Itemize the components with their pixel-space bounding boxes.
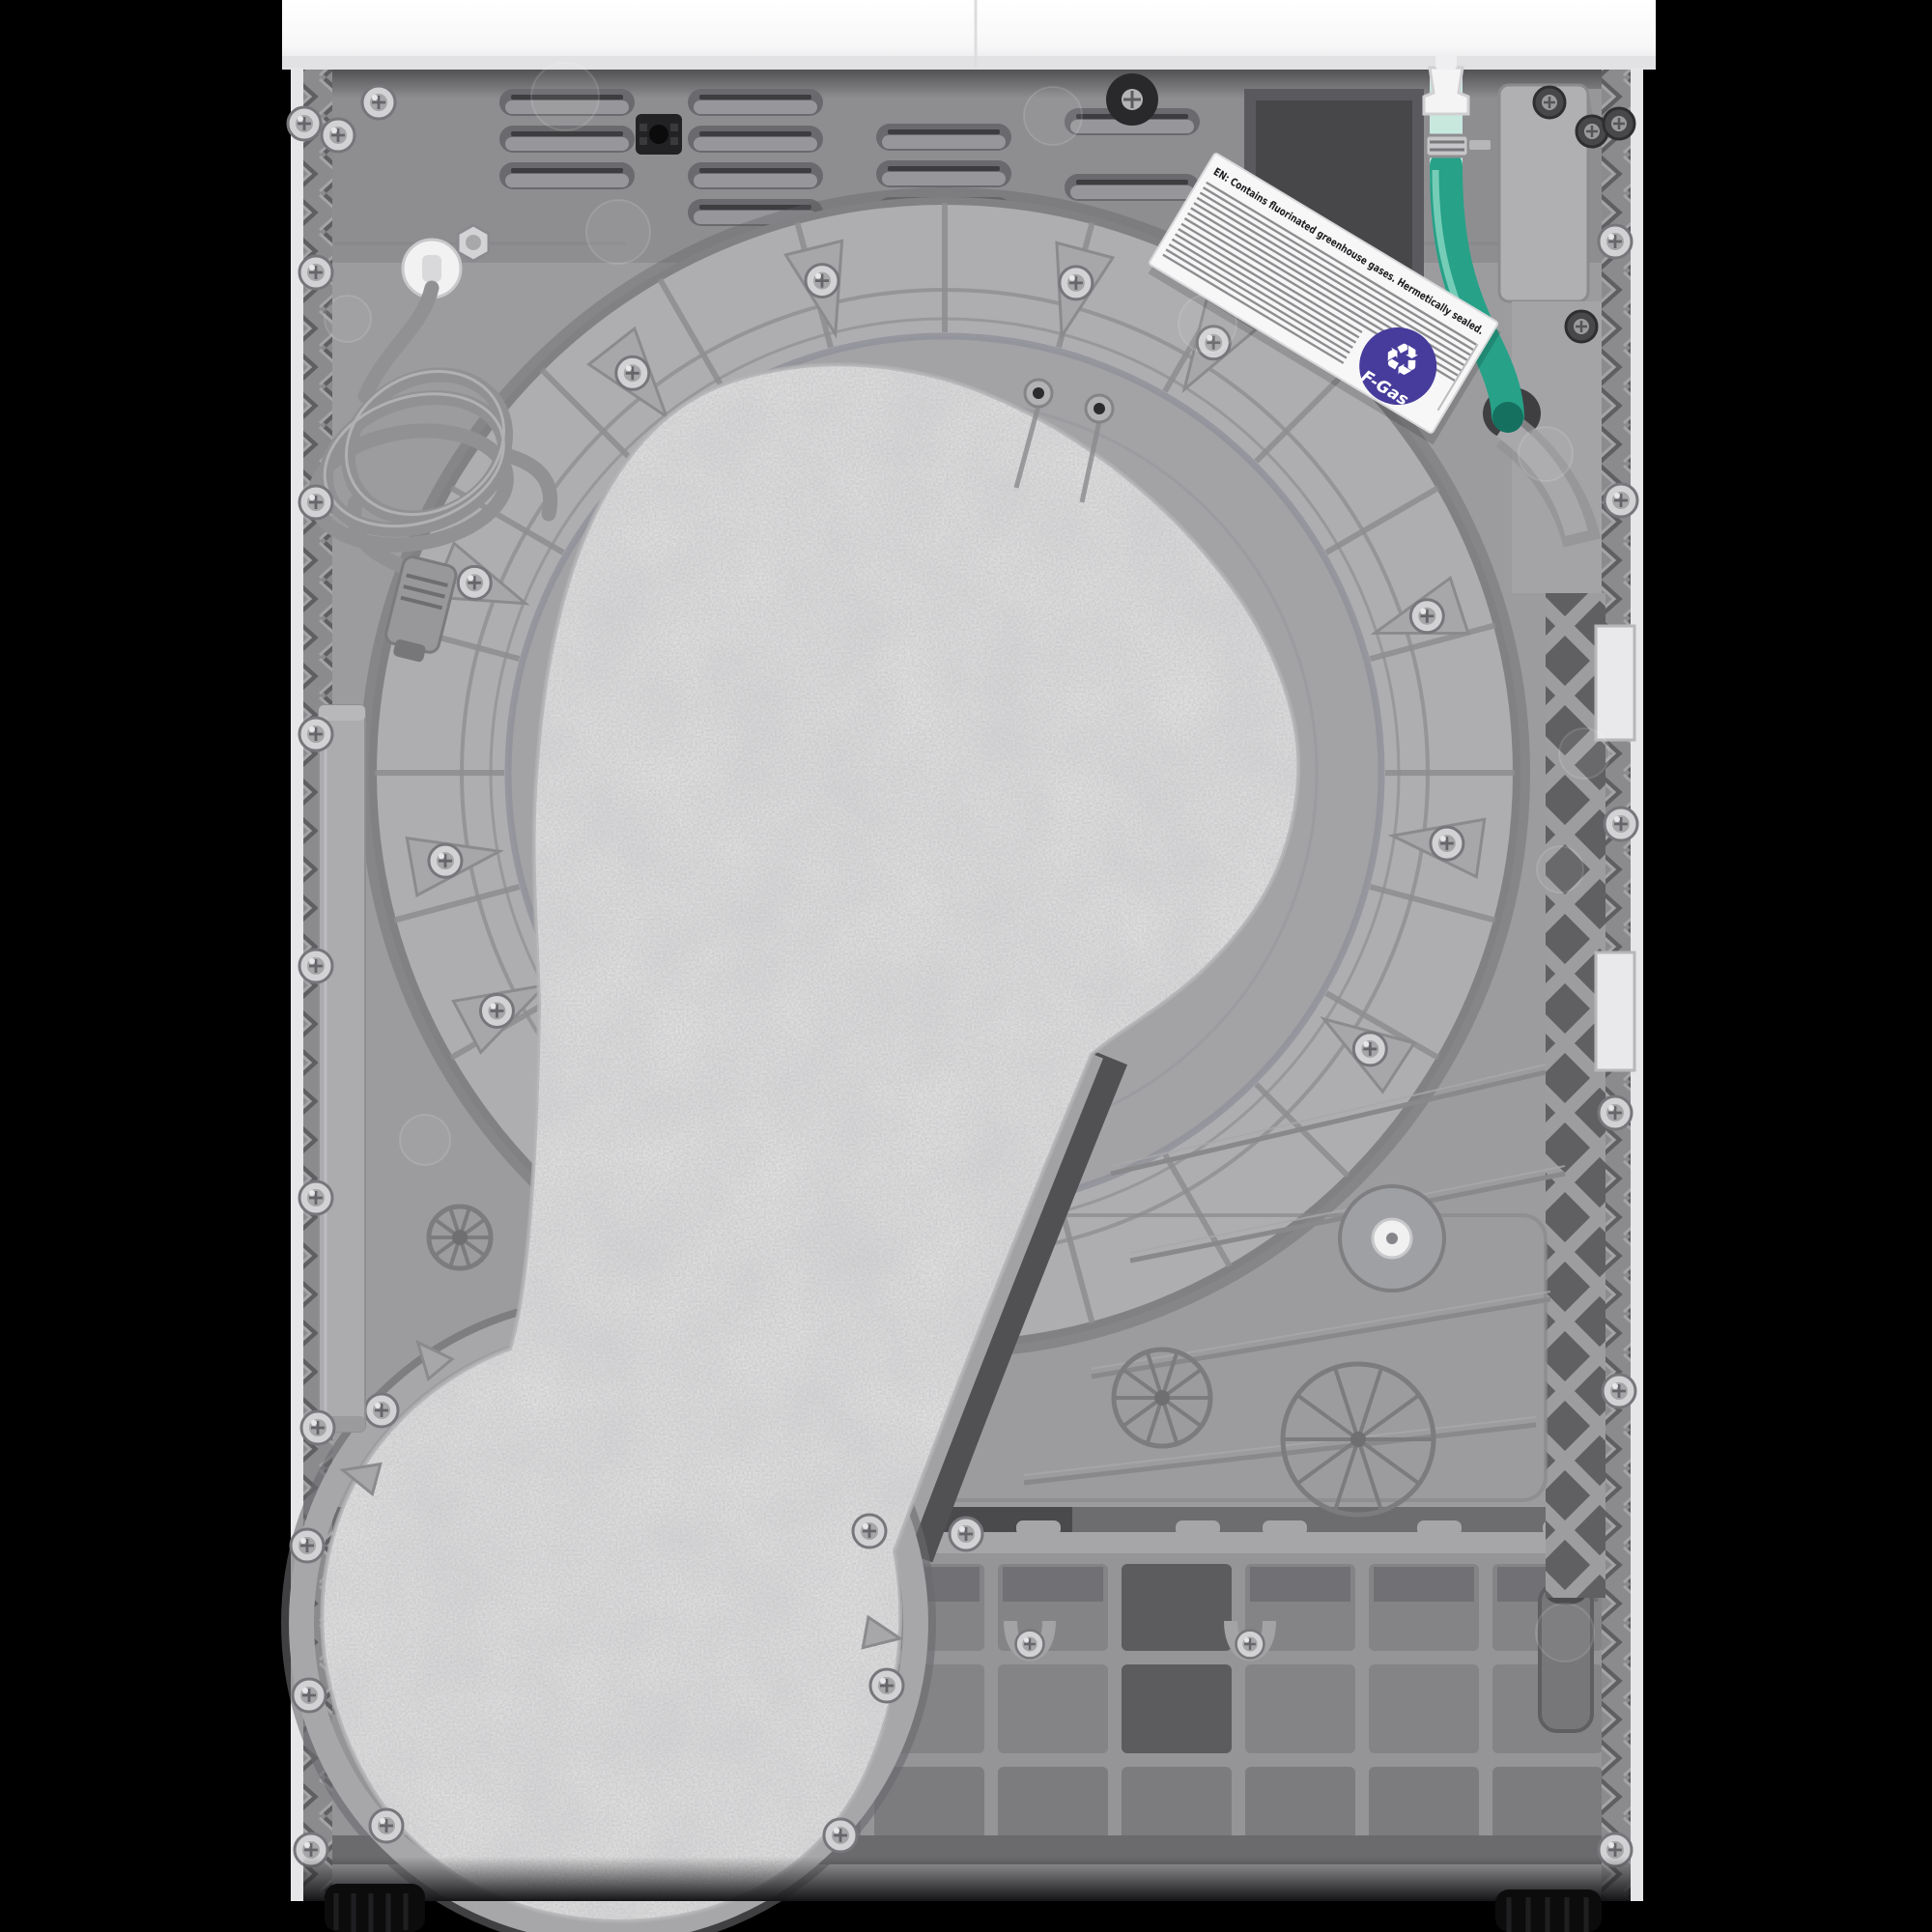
screw-icon xyxy=(1410,600,1443,633)
adjustable-foot-right xyxy=(1495,1889,1602,1932)
screw-icon xyxy=(1016,1631,1044,1659)
vent-slot-slit xyxy=(699,131,811,136)
dark-screw-icon xyxy=(1566,311,1597,342)
screw-icon xyxy=(616,356,649,389)
screw-icon xyxy=(806,265,838,298)
base-rim-tab xyxy=(1417,1520,1462,1536)
screw-icon xyxy=(322,119,355,152)
spoke-hub xyxy=(1350,1432,1366,1447)
spoke-hub xyxy=(452,1230,468,1245)
vent-slot-inner xyxy=(505,174,629,187)
screw-icon xyxy=(299,256,332,289)
screw-icon xyxy=(299,950,332,982)
base-rim-tab xyxy=(1263,1520,1307,1536)
dark-screw-icon xyxy=(1604,108,1634,139)
drain-hose-tip xyxy=(1492,402,1523,433)
dark-screw-icon xyxy=(1534,87,1565,118)
base-rim-tab xyxy=(1016,1520,1061,1536)
left-trim-bar xyxy=(319,705,365,1432)
shaft-clip xyxy=(636,114,682,155)
screw-icon xyxy=(301,1411,334,1444)
screw-icon xyxy=(1236,1631,1264,1659)
screw-icon xyxy=(293,1679,326,1712)
base-cell-shadow xyxy=(1003,1567,1103,1602)
edge-notch-lower xyxy=(1596,952,1634,1070)
base-cell xyxy=(1122,1564,1232,1651)
screw-icon xyxy=(291,1529,324,1562)
base-cell xyxy=(1245,1664,1355,1753)
vent-slot-slit xyxy=(699,95,811,99)
base-cell xyxy=(998,1664,1108,1753)
idler-pulley xyxy=(1340,1186,1444,1291)
screw-icon xyxy=(299,718,332,751)
adjustable-foot-left xyxy=(325,1884,425,1932)
vent-slot-slit xyxy=(511,168,623,173)
spoke-hub xyxy=(1154,1390,1170,1406)
screw-icon xyxy=(429,844,462,877)
vent-slot-inner xyxy=(882,135,1006,149)
screw-icon xyxy=(1431,827,1463,860)
photo-stage: EN: Contains fluorinated greenhouse gase… xyxy=(0,0,1932,1932)
cord-grommet-slot xyxy=(422,255,441,282)
screw-icon xyxy=(1599,225,1632,258)
screw-icon xyxy=(299,1181,332,1214)
screw-icon xyxy=(480,994,513,1027)
screw-icon xyxy=(1605,808,1637,840)
vent-slot-inner xyxy=(505,137,629,151)
vent-slot-slit xyxy=(699,168,811,173)
screw-icon xyxy=(362,86,395,119)
vent-slot-inner xyxy=(882,172,1006,185)
vent-slot-inner xyxy=(694,100,817,114)
vent-slot-inner xyxy=(694,174,817,187)
vent-slot-slit xyxy=(888,166,1000,171)
base-cell xyxy=(1122,1664,1232,1753)
floor-shadow xyxy=(303,1857,1631,1901)
screw-icon xyxy=(1605,484,1637,517)
screw-icon xyxy=(1603,1375,1635,1407)
base-rim-tab xyxy=(1176,1520,1220,1536)
vent-slot-slit xyxy=(1076,180,1188,185)
edge-notch-upper xyxy=(1596,626,1634,740)
hex-bolt xyxy=(458,225,489,261)
base-cell-shadow xyxy=(1250,1567,1350,1602)
vent-slot-inner xyxy=(1070,185,1194,199)
screw-icon xyxy=(1353,1033,1386,1065)
base-cell xyxy=(1369,1664,1479,1753)
screw-icon xyxy=(824,1819,857,1852)
screw-icon xyxy=(299,486,332,519)
vent-slot-inner xyxy=(694,137,817,151)
dark-recessed-screw xyxy=(1106,73,1158,126)
screw-icon xyxy=(1599,1096,1632,1129)
base-cell-shadow xyxy=(1374,1567,1474,1602)
screw-icon xyxy=(458,566,491,599)
screw-icon xyxy=(870,1669,903,1702)
screw-icon xyxy=(365,1394,398,1427)
screw-icon xyxy=(1060,267,1093,299)
top-panel-face xyxy=(282,0,1656,58)
screw-icon xyxy=(853,1515,886,1548)
vent-slot-slit xyxy=(888,129,1000,134)
hose-connector-neck xyxy=(1435,54,1457,70)
dryer-rear-photo: EN: Contains fluorinated greenhouse gase… xyxy=(0,0,1932,1932)
screw-icon xyxy=(950,1518,982,1550)
screw-icon xyxy=(288,107,321,140)
screw-icon xyxy=(370,1809,403,1842)
vent-slot-slit xyxy=(511,131,623,136)
